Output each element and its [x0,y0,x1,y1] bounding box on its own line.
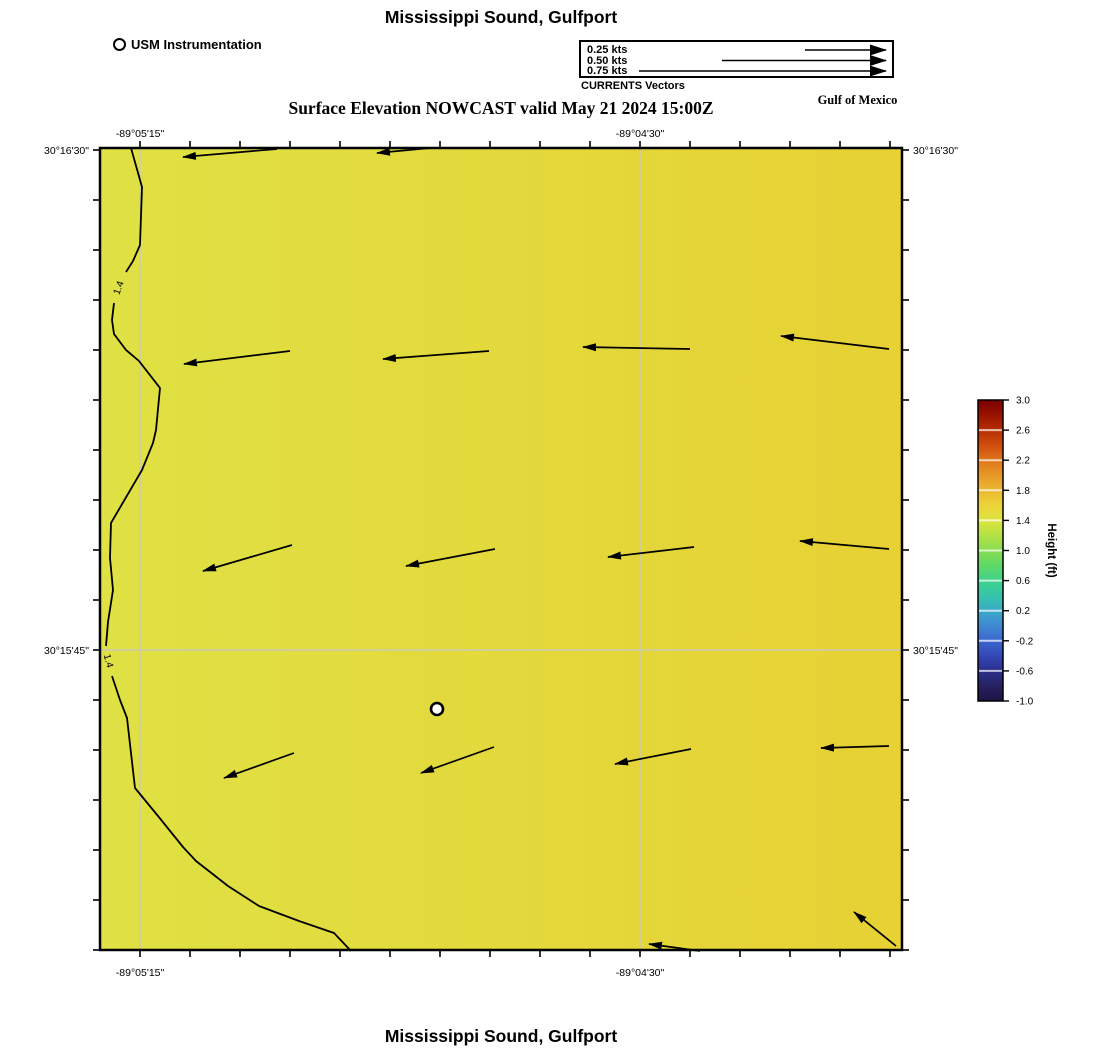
usm-legend-label: USM Instrumentation [131,37,262,52]
colorbar-title: Height (ft) [1045,523,1057,577]
lat-tick-label-left: 30°16'30" [44,145,89,157]
scale-label-075: 0.75 kts [587,66,627,76]
colorbar-tick-label: 2.2 [1016,456,1030,467]
usm-legend: USM Instrumentation [113,37,262,52]
colorbar-tick-label: -0.6 [1016,666,1034,677]
colorbar-tick-label: 2.6 [1016,426,1030,437]
scale-label-025: 0.25 kts [587,45,627,55]
colorbar-tick-label: 0.2 [1016,606,1030,617]
lon-tick-label-top: -89°04'30" [616,128,665,140]
lon-tick-label-bottom: -89°04'30" [616,967,665,979]
colorbar-tick-label: 1.0 [1016,546,1030,557]
lat-tick-label-right: 30°16'30" [913,145,958,157]
colorbar-tick-label: -0.2 [1016,636,1034,647]
currents-caption: CURRENTS Vectors [581,80,685,92]
station-circle-icon [113,38,126,51]
lon-tick-label-top: -89°05'15" [116,128,165,140]
footer-title: Mississippi Sound, Gulfport [100,1026,902,1047]
surface-elevation-nowcast-plot: 1.41.4-89°05'15"-89°05'15"-89°04'30"-89°… [0,0,1100,1050]
sea-surface [100,148,902,950]
colorbar-tick-label: -1.0 [1016,697,1034,708]
usm-station-marker [431,703,443,715]
currents-scale-legend: 0.25 kts 0.50 kts 0.75 kts [579,40,894,78]
lon-tick-label-bottom: -89°05'15" [116,967,165,979]
map-canvas: 1.41.4-89°05'15"-89°05'15"-89°04'30"-89°… [0,0,1100,1050]
scale-label-050: 0.50 kts [587,56,627,66]
page-title: Mississippi Sound, Gulfport [100,7,902,28]
plot-subtitle: Surface Elevation NOWCAST valid May 21 2… [100,98,902,119]
lat-tick-label-left: 30°15'45" [44,645,89,657]
colorbar-tick-label: 1.8 [1016,486,1030,497]
colorbar-tick-label: 3.0 [1016,396,1030,407]
colorbar-tick-label: 0.6 [1016,576,1030,587]
colorbar-tick-label: 1.4 [1016,516,1030,527]
lat-tick-label-right: 30°15'45" [913,645,958,657]
